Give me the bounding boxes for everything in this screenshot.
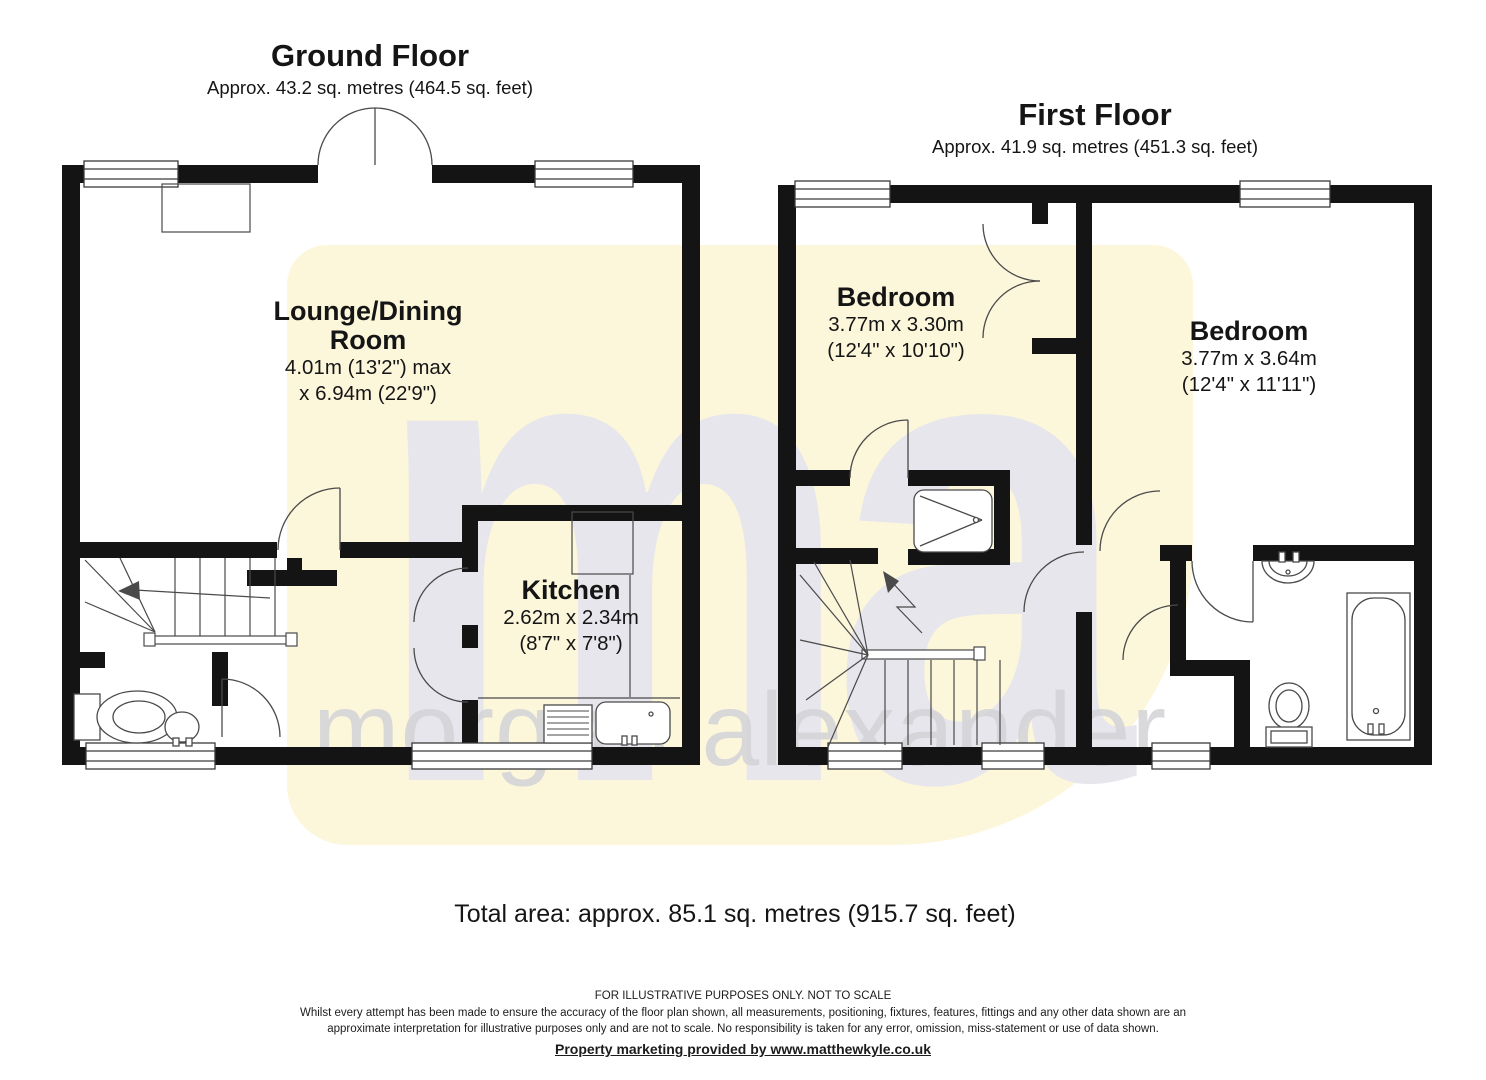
lounge-name-line2: Room: [274, 326, 463, 355]
footer-disclaimer-line3: approximate interpretation for illustrat…: [0, 1023, 1486, 1035]
bedroom1-dim-imperial: (12'4" x 10'10"): [827, 338, 964, 364]
french-doors-icon: [318, 108, 432, 165]
kitchen-dim-metric: 2.62m x 2.34m: [503, 605, 639, 631]
lounge-dim-metric: 4.01m (13'2") max: [274, 355, 463, 381]
lounge-storage-unit: [162, 184, 250, 232]
first-floor-plan: [778, 181, 1432, 769]
ground-exterior-walls: [62, 165, 700, 765]
footer-marketing-link[interactable]: Property marketing provided by www.matth…: [0, 1041, 1486, 1057]
ground-floor-area: Approx. 43.2 sq. metres (464.5 sq. feet): [207, 77, 533, 99]
ground-door-arcs: [222, 488, 468, 737]
first-floor-title: First Floor: [1018, 97, 1171, 133]
toilet-first-icon: [1266, 683, 1312, 747]
bedroom2-name: Bedroom: [1181, 317, 1317, 346]
kitchen-name: Kitchen: [503, 576, 639, 605]
bedroom2-label: Bedroom 3.77m x 3.64m (12'4" x 11'11"): [1181, 317, 1317, 398]
bedroom1-name: Bedroom: [827, 283, 964, 312]
bedroom1-label: Bedroom 3.77m x 3.30m (12'4" x 10'10"): [827, 283, 964, 364]
total-area-text: Total area: approx. 85.1 sq. metres (915…: [454, 900, 1015, 929]
toilet-icon: [74, 691, 177, 743]
shower-icon: [914, 490, 992, 552]
footer-disclaimer-heading: FOR ILLUSTRATIVE PURPOSES ONLY. NOT TO S…: [0, 990, 1486, 1002]
bathtub-icon: [1347, 593, 1410, 740]
kitchen-sink-icon: [544, 702, 670, 745]
ground-floor-title: Ground Floor: [271, 38, 469, 74]
bedroom1-dim-metric: 3.77m x 3.30m: [827, 312, 964, 338]
footer-disclaimer-line2: Whilst every attempt has been made to en…: [0, 1007, 1486, 1019]
first-exterior-walls: [778, 185, 1432, 765]
lounge-name-line1: Lounge/Dining: [274, 297, 463, 326]
first-floor-area: Approx. 41.9 sq. metres (451.3 sq. feet): [932, 136, 1258, 158]
basin-icon: [165, 712, 199, 746]
lounge-dim-imperial: x 6.94m (22'9"): [274, 381, 463, 407]
floorplan-page: ma morgan alexander: [0, 0, 1486, 1080]
bedroom2-dim-metric: 3.77m x 3.64m: [1181, 346, 1317, 372]
kitchen-label: Kitchen 2.62m x 2.34m (8'7" x 7'8"): [503, 576, 639, 657]
ground-windows: [84, 161, 633, 769]
ground-floor-plan: [62, 108, 700, 769]
bedroom2-dim-imperial: (12'4" x 11'11"): [1181, 372, 1317, 398]
lounge-label: Lounge/Dining Room 4.01m (13'2") max x 6…: [274, 297, 463, 407]
first-stairs-icon: [800, 560, 1000, 747]
kitchen-dim-imperial: (8'7" x 7'8"): [503, 631, 639, 657]
